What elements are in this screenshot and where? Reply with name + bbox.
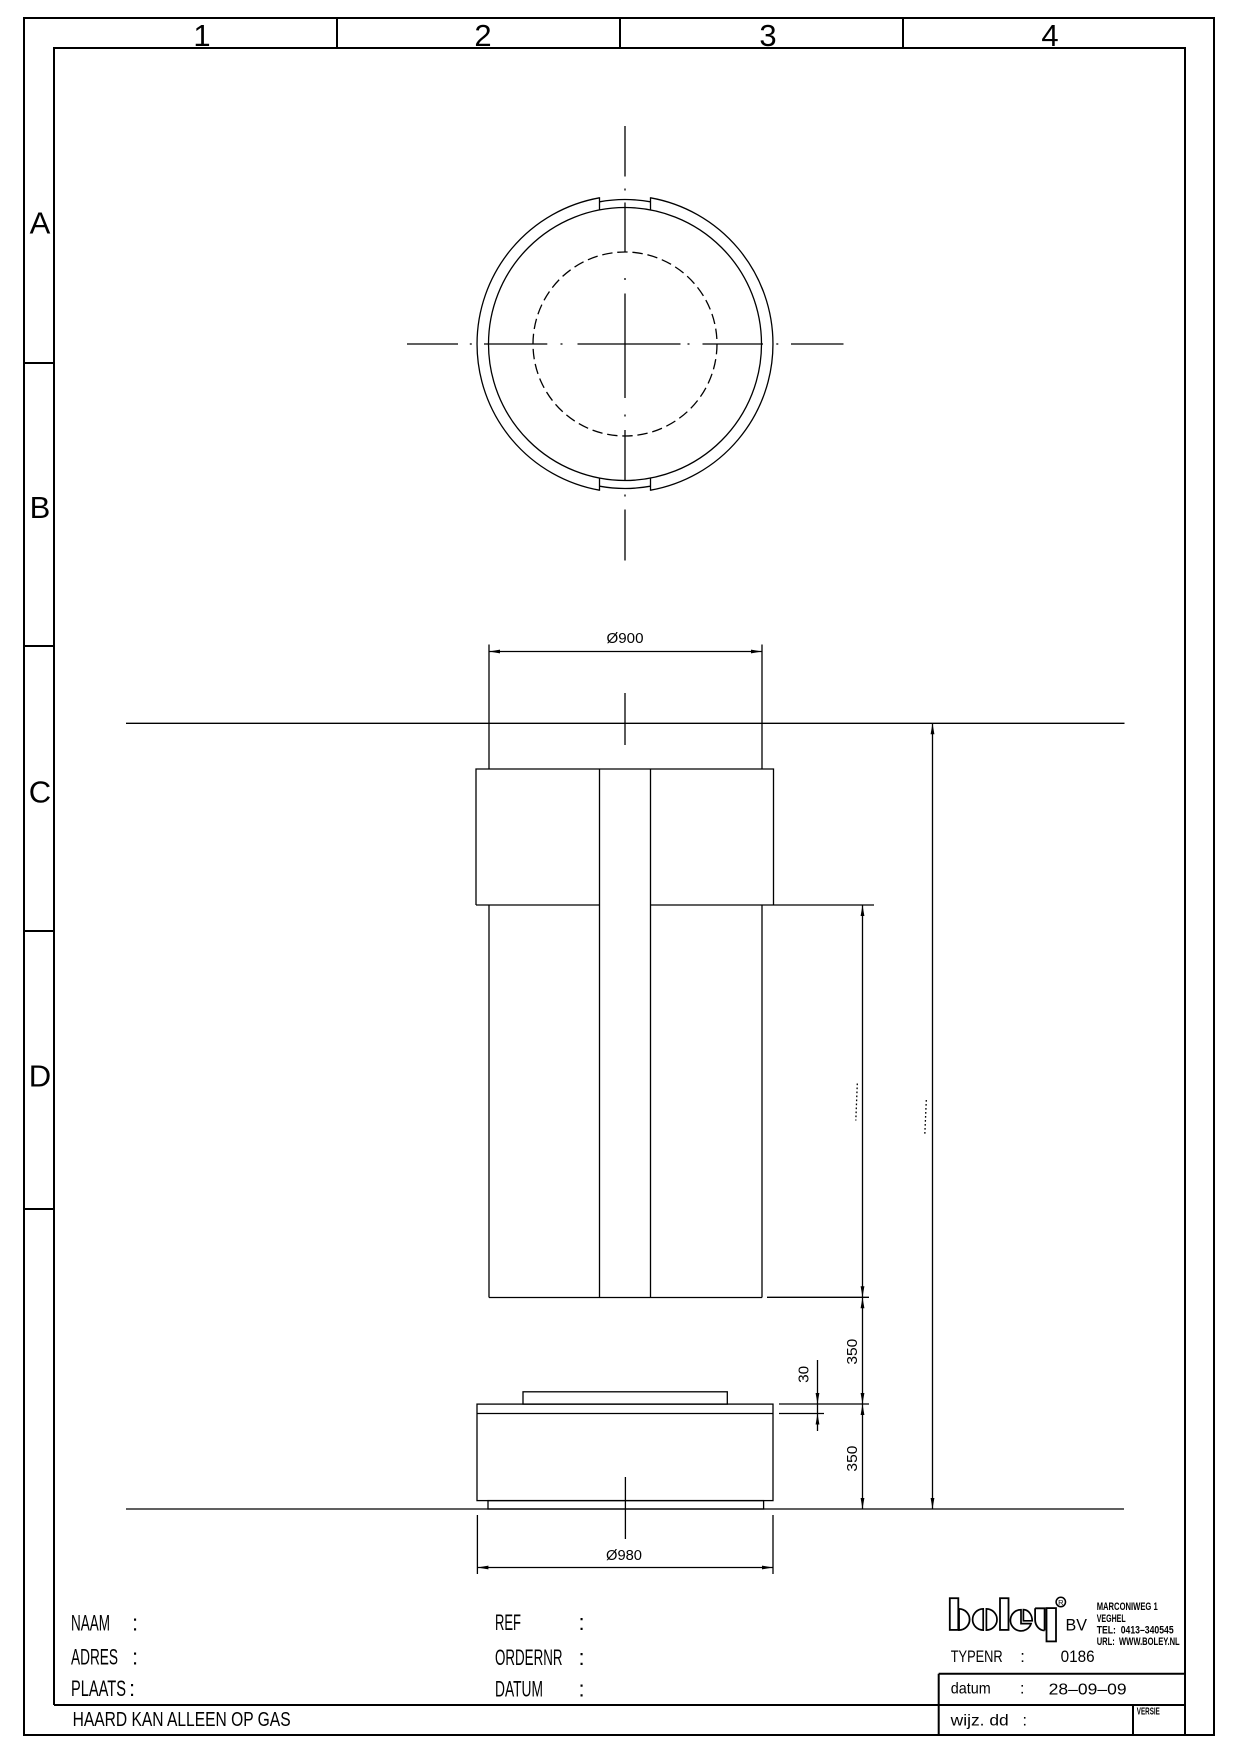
svg-text:C: C — [29, 775, 51, 810]
svg-text::: : — [132, 1645, 138, 1670]
svg-text::: : — [1020, 1681, 1024, 1698]
svg-text::: : — [579, 1645, 585, 1670]
svg-text:350: 350 — [845, 1446, 861, 1472]
svg-text::: : — [129, 1676, 135, 1701]
svg-text:TYPENR: TYPENR — [951, 1648, 1003, 1666]
svg-text:HAARD KAN ALLEEN OP GAS: HAARD KAN ALLEEN OP GAS — [73, 1709, 291, 1731]
svg-text:TEL: 0413–340545: TEL: 0413–340545 — [1097, 1625, 1174, 1637]
svg-text:wijz. dd: wijz. dd — [950, 1713, 1009, 1730]
svg-text:0186: 0186 — [1061, 1648, 1095, 1666]
svg-text:REF: REF — [495, 1610, 521, 1635]
svg-text:datum: datum — [951, 1681, 991, 1698]
svg-text::: : — [579, 1677, 585, 1702]
svg-text:Ø900: Ø900 — [607, 631, 644, 647]
svg-text::: : — [1023, 1713, 1027, 1730]
svg-text::: : — [132, 1611, 138, 1636]
svg-text:4: 4 — [1041, 18, 1058, 53]
svg-text:BV: BV — [1066, 1617, 1088, 1635]
svg-text:28–09–09: 28–09–09 — [1049, 1681, 1127, 1698]
svg-text:1: 1 — [193, 18, 210, 53]
svg-text:30: 30 — [797, 1366, 813, 1383]
svg-text:PLAATS: PLAATS — [71, 1676, 126, 1701]
svg-text:VERSIE: VERSIE — [1137, 1707, 1160, 1718]
svg-text:VEGHEL: VEGHEL — [1097, 1613, 1126, 1625]
svg-text:B: B — [30, 490, 51, 525]
svg-text:ADRES: ADRES — [71, 1645, 118, 1670]
svg-text:A: A — [30, 206, 51, 241]
svg-text:350: 350 — [845, 1339, 861, 1365]
svg-text:NAAM: NAAM — [71, 1611, 110, 1636]
svg-text::: : — [1020, 1648, 1025, 1666]
svg-text:R: R — [1058, 1598, 1064, 1607]
svg-text:ORDERNR: ORDERNR — [495, 1645, 563, 1670]
svg-text:URL: WWW.BOLEY.NL: URL: WWW.BOLEY.NL — [1097, 1636, 1180, 1648]
svg-text::: : — [579, 1610, 585, 1635]
svg-text:3: 3 — [759, 18, 776, 53]
svg-text:D: D — [29, 1059, 51, 1094]
svg-text:DATUM: DATUM — [495, 1677, 543, 1702]
svg-text:2: 2 — [474, 18, 491, 53]
svg-text:Ø980: Ø980 — [606, 1548, 642, 1564]
svg-text:MARCONIWEG 1: MARCONIWEG 1 — [1097, 1601, 1158, 1613]
